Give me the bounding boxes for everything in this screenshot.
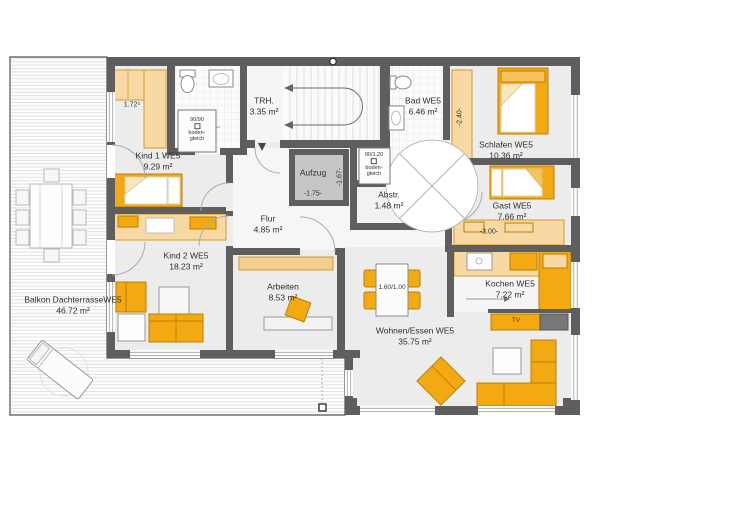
sofa-kind2 [149, 314, 203, 342]
shower-symbol [371, 158, 377, 164]
room-label-flur: Flur 4.85 m² [254, 213, 283, 234]
tv-label: TV [512, 317, 520, 325]
room-label-balkon: Balkon DachterrasseWE5 46.72 m² [24, 294, 121, 315]
shower-note-bad: 90/1.20 boden- gleich [365, 152, 383, 178]
room-label-kochen: Kochen WE5 7.22 m² [485, 278, 535, 299]
dim-dining-table: 1.60/1.00 [378, 284, 405, 292]
balkon-name: Balkon DachterrasseWE5 [24, 294, 121, 304]
dim-aufzug-depth: -1.67- [337, 168, 346, 186]
desk-row-kind2 [112, 214, 226, 240]
wardrobe-gast [454, 220, 564, 245]
room-label-gast: Gast WE5 7.66 m² [493, 200, 532, 221]
room-label-trh: TRH. 3.35 m² [250, 95, 279, 116]
closet-kind1-b [144, 70, 166, 148]
kitchen-sink [467, 253, 492, 270]
dim-aufzug-width: -1.75- [304, 191, 322, 200]
dim-wardrobe-schlafen: -2.40- [457, 108, 466, 126]
room-label-kind2: Kind 2 WE5 18.23 m² [164, 250, 209, 271]
bed-gast [490, 166, 554, 199]
room-label-aufzug: Aufzug [300, 168, 326, 179]
bed-kind1 [112, 174, 182, 207]
wc-bad [395, 76, 411, 89]
room-label-schlafen: Schlafen WE5 10.36 m² [479, 139, 533, 160]
tv-board [488, 309, 571, 330]
shelf-arbeiten [239, 257, 333, 270]
shower-note-kind: 90/90 boden- gleich [188, 117, 205, 143]
kitchen-stove [510, 253, 537, 270]
coffee-table [493, 348, 521, 374]
terrace-table [30, 184, 72, 248]
floorplan: Balkon DachterrasseWE5 46.72 m² Kind 1 W… [0, 0, 750, 521]
room-label-arbeiten: Arbeiten 8.53 m² [267, 281, 299, 302]
staircase [283, 66, 378, 142]
dim-wardrobe-gast: -3.00- [480, 229, 498, 238]
downpipe-symbol [330, 58, 336, 64]
room-label-bad: Bad WE5 6.46 m² [405, 95, 441, 116]
bed-schlafen [498, 68, 548, 134]
terrace-post [319, 404, 326, 411]
hall-door-pinwheel [386, 140, 478, 232]
rug-kind2 [118, 314, 145, 341]
floorplan-drawing [0, 0, 750, 521]
room-label-abstr: Abstr. 1.48 m² [375, 189, 404, 210]
table-kind2 [159, 287, 189, 315]
dim-closet-kind1: 1.72⁵ [124, 102, 141, 111]
balkon-area: 46.72 m² [56, 305, 90, 315]
room-label-wohnen: Wohnen/Essen WE5 35.75 m² [376, 325, 454, 346]
shower-symbol [194, 123, 200, 129]
wc-bath1 [181, 76, 194, 93]
room-label-kind1: Kind 1 WE5 9.29 m² [136, 150, 181, 171]
